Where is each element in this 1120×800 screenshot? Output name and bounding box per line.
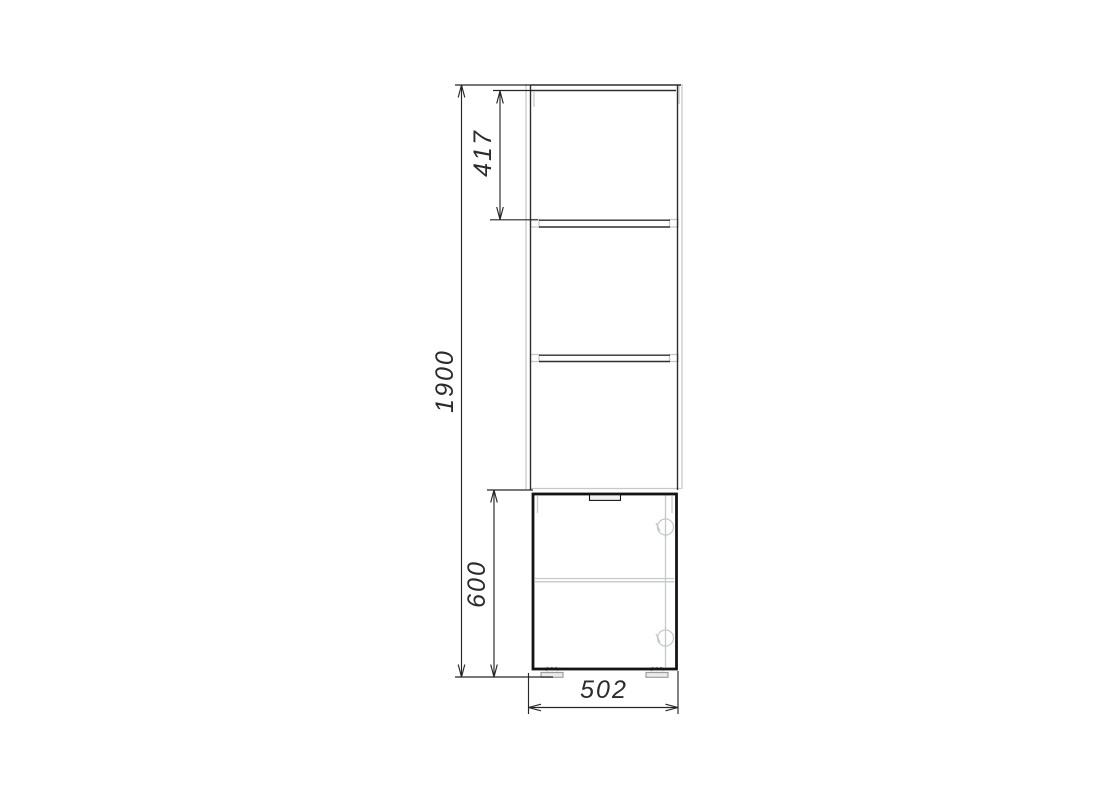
shelf2-left-fitting bbox=[531, 355, 540, 362]
label-lower-cabinet-height: 600 bbox=[463, 560, 491, 608]
shelf-2 bbox=[539, 355, 670, 361]
dimension-labels: 1900 417 600 502 bbox=[431, 129, 628, 704]
cabinet-technical-drawing: 1900 417 600 502 bbox=[0, 0, 1120, 800]
label-overall-height: 1900 bbox=[431, 349, 459, 413]
hinge-top-icon bbox=[656, 516, 674, 538]
shelf2-right-fitting bbox=[670, 355, 679, 362]
dimension-width bbox=[529, 704, 679, 711]
upper-shelf-unit bbox=[531, 85, 682, 490]
label-width: 502 bbox=[580, 676, 628, 704]
hinge-bottom-icon bbox=[656, 627, 674, 649]
dimension-lower-cabinet bbox=[491, 490, 498, 677]
shelf-1 bbox=[539, 220, 670, 227]
dimension-annotations bbox=[455, 85, 678, 714]
light-panel-details bbox=[526, 84, 682, 667]
shelf1-left-fitting bbox=[531, 220, 540, 228]
door-handle-recess bbox=[590, 495, 621, 501]
dimension-upper-section bbox=[497, 91, 504, 220]
shelf1-right-fitting bbox=[670, 220, 679, 228]
drawing-canvas: 1900 417 600 502 bbox=[0, 0, 1120, 800]
label-upper-section-height: 417 bbox=[469, 129, 497, 177]
